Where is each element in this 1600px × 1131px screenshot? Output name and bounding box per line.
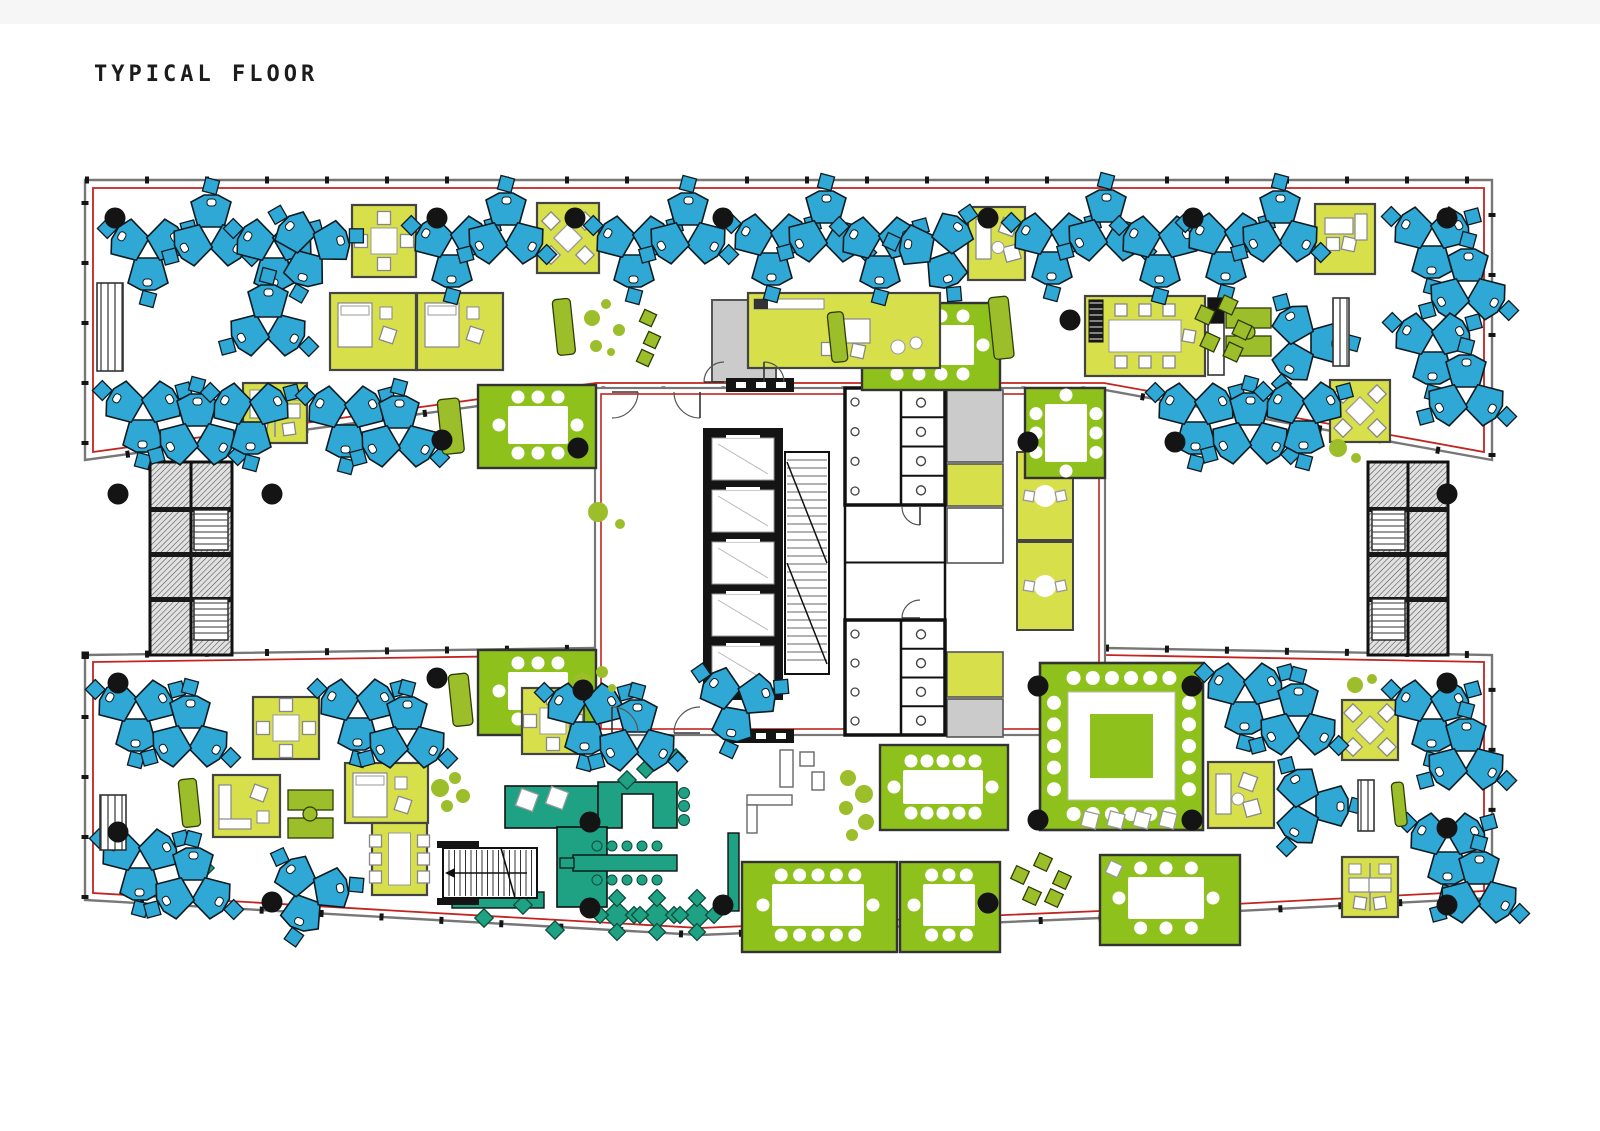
desk-slot — [1443, 873, 1452, 880]
chair — [953, 807, 966, 820]
desk-slot — [1462, 723, 1471, 730]
desk-slot — [633, 704, 642, 711]
table — [273, 715, 299, 741]
desk-chair — [588, 753, 605, 770]
sofa — [219, 785, 231, 821]
booth-desk2-18 — [1342, 857, 1398, 917]
desk-slot — [1240, 723, 1249, 730]
column — [1060, 310, 1081, 331]
plant — [613, 324, 625, 336]
desk-chair — [443, 287, 460, 304]
column — [427, 208, 448, 229]
chair — [1327, 238, 1340, 251]
desk-chair — [774, 679, 789, 694]
column — [713, 895, 734, 916]
chair — [1243, 799, 1261, 817]
plant — [858, 814, 874, 830]
chair — [257, 722, 270, 735]
desk-chair — [349, 877, 364, 892]
chair — [552, 447, 565, 460]
desk-chair — [1151, 287, 1168, 304]
column — [108, 822, 129, 843]
chair — [1047, 696, 1061, 710]
plant — [590, 340, 602, 352]
plant — [1351, 453, 1361, 463]
plant — [608, 684, 616, 692]
chair — [848, 869, 861, 882]
column — [1437, 208, 1458, 229]
toilet-icon — [917, 486, 926, 495]
chair — [1134, 862, 1147, 875]
washbasin-icon — [851, 457, 859, 465]
stair-flange — [437, 841, 479, 848]
stair-flange — [437, 898, 479, 905]
white-furniture — [747, 805, 757, 833]
column — [580, 898, 601, 919]
chair — [986, 781, 999, 794]
column — [573, 680, 594, 701]
booth-sofaL-14 — [213, 775, 280, 837]
column — [427, 668, 448, 689]
desk-chair — [141, 749, 158, 766]
meeting-room-8 — [1100, 855, 1240, 945]
chair — [547, 738, 560, 751]
desk-chair — [871, 288, 888, 305]
desk-chair — [1289, 666, 1306, 683]
stair-flight — [1372, 599, 1405, 640]
washbasin-icon — [851, 428, 859, 436]
desk-chair — [1480, 814, 1497, 831]
chair — [1185, 922, 1198, 935]
desk-chair — [202, 177, 219, 194]
core-accessible-wc — [947, 464, 1003, 506]
chair — [1090, 427, 1103, 440]
desk-slot — [1427, 267, 1436, 274]
washbasin-icon — [851, 688, 859, 696]
chair — [960, 869, 973, 882]
shaft-slot — [736, 382, 746, 388]
chair — [937, 755, 950, 768]
desk-slot — [875, 277, 884, 284]
toilet-icon — [917, 457, 926, 466]
toilet-icon — [917, 716, 926, 725]
toilet-icon — [917, 659, 926, 668]
desk-chair — [162, 248, 179, 265]
shaft-slot — [756, 382, 766, 388]
column — [568, 438, 589, 459]
plant — [456, 789, 470, 803]
plant — [596, 666, 608, 678]
column — [1182, 810, 1203, 831]
chair — [848, 929, 861, 942]
desk-chair — [457, 246, 474, 263]
plant — [615, 519, 625, 529]
desk-slot — [1276, 195, 1285, 202]
sofa — [1216, 774, 1231, 814]
chair — [512, 657, 525, 670]
chair — [1047, 782, 1061, 796]
phone-chair — [1023, 490, 1035, 502]
stacked-chair — [1133, 811, 1151, 829]
chair — [1341, 236, 1356, 251]
chair — [850, 343, 865, 358]
chair — [830, 869, 843, 882]
large-meeting-room — [1040, 663, 1203, 830]
column — [713, 208, 734, 229]
chair — [1090, 407, 1103, 420]
cafe-long-table — [573, 855, 677, 871]
chair — [775, 929, 788, 942]
chair — [1182, 739, 1196, 753]
phone-chair — [1023, 580, 1035, 592]
chair — [957, 310, 970, 323]
desk — [1369, 878, 1391, 892]
chair — [925, 869, 938, 882]
washbasin-icon — [851, 487, 859, 495]
plant — [846, 829, 858, 841]
desk-slot — [135, 889, 144, 896]
phone-table — [1034, 575, 1056, 597]
desk-slot — [726, 729, 736, 737]
chair — [418, 835, 430, 847]
desk-chair — [1417, 772, 1434, 789]
plant — [431, 779, 449, 797]
chair — [1047, 761, 1061, 775]
desk-chair — [144, 901, 161, 918]
chair — [1143, 671, 1157, 685]
desk-slot — [264, 289, 273, 296]
desk-slot — [341, 446, 350, 453]
plant — [855, 785, 873, 803]
chair — [757, 899, 770, 912]
desk-slot — [336, 883, 344, 893]
chair — [1105, 671, 1119, 685]
chair — [867, 899, 880, 912]
desk-chair — [1457, 337, 1474, 354]
white-furniture — [747, 795, 792, 805]
booth-xtable-13 — [1342, 700, 1398, 760]
chair — [977, 339, 990, 352]
desk-chair — [184, 830, 201, 847]
desk-chair — [181, 678, 198, 695]
stool — [910, 337, 922, 349]
shaft-slot — [776, 382, 786, 388]
chair — [282, 422, 296, 436]
desk-chair — [1417, 408, 1434, 425]
column — [1182, 676, 1203, 697]
core-gray-cell — [947, 390, 1003, 462]
desk-slot — [1047, 273, 1056, 280]
chair — [830, 929, 843, 942]
desk-chair — [1187, 454, 1204, 471]
desk-slot — [447, 276, 456, 283]
chair — [891, 368, 904, 381]
chair — [812, 929, 825, 942]
floor-plan-page: TYPICAL FLOOR — [0, 0, 1600, 1131]
shaft-slot — [756, 733, 766, 739]
chair — [1086, 671, 1100, 685]
chair — [1067, 671, 1081, 685]
car-door — [726, 539, 760, 542]
chair — [1139, 304, 1151, 316]
chair — [957, 368, 970, 381]
desk-chair — [1278, 757, 1295, 774]
phone-chair — [1055, 580, 1067, 592]
plant — [584, 310, 600, 326]
cafe-table-end — [560, 858, 574, 868]
desk-chair — [398, 679, 415, 696]
desk-slot — [246, 443, 255, 450]
phone-room-2 — [1017, 542, 1073, 630]
white-furniture — [780, 750, 793, 787]
stool — [592, 875, 602, 885]
sofa — [219, 819, 251, 829]
desk-chair — [1201, 446, 1218, 463]
chair — [493, 685, 506, 698]
booth-desk1-4 — [1315, 204, 1375, 274]
desk-slot — [1475, 856, 1484, 863]
chair — [1182, 329, 1196, 343]
washbasin-icon — [851, 398, 859, 406]
desk-chair — [1043, 284, 1060, 301]
chair — [1160, 922, 1173, 935]
toilet-icon — [917, 398, 926, 407]
chair — [1373, 896, 1387, 910]
chair — [401, 235, 414, 248]
chair — [935, 368, 948, 381]
booth-lounge-17 — [1208, 762, 1274, 828]
booth-table6v-16 — [370, 823, 430, 895]
chair — [1115, 304, 1127, 316]
chair — [370, 835, 382, 847]
column — [1018, 432, 1039, 453]
column — [1437, 818, 1458, 839]
chair — [280, 699, 293, 712]
meeting-room-6 — [742, 862, 897, 952]
stacked-chair — [1081, 811, 1099, 829]
plant — [1329, 439, 1347, 457]
desk-slot — [1155, 276, 1164, 283]
column — [105, 208, 126, 229]
desk-chair — [1419, 302, 1436, 319]
desk-chair — [1465, 314, 1482, 331]
washbasin-icon — [851, 659, 859, 667]
booth-bed-5 — [330, 293, 416, 370]
stool — [607, 841, 617, 851]
core-gray-cell — [947, 699, 1003, 737]
column — [565, 208, 586, 229]
chair — [1160, 862, 1173, 875]
column — [432, 430, 453, 451]
booth-bed-15 — [345, 763, 428, 823]
chair — [921, 807, 934, 820]
av-unit — [754, 299, 768, 309]
chair — [1090, 446, 1103, 459]
car-door — [726, 591, 760, 594]
desk-chair — [1271, 173, 1288, 190]
chair — [493, 419, 506, 432]
plant — [840, 770, 856, 786]
desk-chair — [358, 750, 375, 767]
desk-slot — [629, 276, 638, 283]
desk-slot — [684, 197, 693, 204]
stool — [637, 875, 647, 885]
stool — [592, 841, 602, 851]
desk-chair — [946, 287, 961, 302]
desk-slot — [1102, 194, 1111, 201]
desk-slot — [502, 197, 511, 204]
side-table — [380, 307, 392, 319]
chair — [913, 368, 926, 381]
chair — [793, 929, 806, 942]
column — [1437, 673, 1458, 694]
booth-table4-11 — [253, 697, 319, 759]
desk-chair — [763, 285, 780, 302]
chair — [1182, 696, 1196, 710]
chair — [888, 781, 901, 794]
column — [108, 484, 129, 505]
chair — [969, 807, 982, 820]
chair — [943, 929, 956, 942]
toilet-icon — [917, 427, 926, 436]
bookshelf — [1358, 780, 1374, 831]
bathroom-south — [845, 620, 945, 735]
stool — [679, 815, 690, 826]
table — [1109, 320, 1181, 352]
phone-chair — [1055, 490, 1067, 502]
pillow — [356, 776, 384, 785]
desk-slot — [395, 400, 404, 407]
desk — [1349, 878, 1371, 892]
chair — [905, 755, 918, 768]
chair — [370, 853, 382, 865]
column — [1437, 484, 1458, 505]
desk-chair — [242, 454, 259, 471]
column — [1437, 895, 1458, 916]
chair — [532, 447, 545, 460]
chair — [1115, 356, 1127, 368]
plant — [441, 800, 453, 812]
chair — [303, 722, 316, 735]
column — [1165, 432, 1186, 453]
desk-slot — [1428, 373, 1437, 380]
plant — [588, 502, 608, 522]
stool — [679, 788, 690, 799]
conference-table — [923, 884, 975, 926]
chair — [953, 755, 966, 768]
desk-slot — [186, 700, 195, 707]
chair — [552, 391, 565, 404]
chair — [532, 391, 545, 404]
chair — [1134, 922, 1147, 935]
desk-slot — [767, 274, 776, 281]
cabinet — [1355, 214, 1367, 240]
meeting-room-5 — [880, 745, 1008, 830]
conference-table — [1128, 877, 1204, 919]
chair — [937, 807, 950, 820]
desk-chair — [350, 449, 367, 466]
plant — [601, 299, 611, 309]
desk-chair — [628, 682, 645, 699]
desk — [1325, 218, 1353, 234]
stool — [652, 875, 662, 885]
stool — [622, 841, 632, 851]
toilet-icon — [917, 687, 926, 696]
cabinet — [1379, 864, 1391, 874]
desk-slot — [1462, 359, 1471, 366]
chair — [1030, 407, 1043, 420]
conference-table — [508, 406, 568, 444]
chair — [1182, 761, 1196, 775]
desk-slot — [1294, 688, 1303, 695]
booth-table8h-8 — [1085, 296, 1205, 376]
chair — [552, 657, 565, 670]
column — [108, 673, 129, 694]
white-furniture — [812, 772, 824, 790]
desk-chair — [817, 173, 834, 190]
chair — [418, 871, 430, 883]
stool — [303, 807, 317, 821]
chair — [1353, 896, 1367, 910]
chair — [1060, 465, 1073, 478]
core-stair — [785, 452, 829, 674]
desk-chair — [390, 378, 407, 395]
external-stair-left — [150, 462, 232, 655]
plan-root — [78, 172, 1537, 965]
conference-table — [903, 770, 983, 804]
counter — [1089, 300, 1103, 342]
table — [371, 228, 397, 254]
meeting-room-2 — [1025, 388, 1105, 478]
core-accessible-wc — [947, 652, 1003, 697]
column — [1028, 810, 1049, 831]
stacked-chair — [1107, 811, 1125, 829]
chair — [1182, 717, 1196, 731]
desk-chair — [679, 175, 696, 192]
desk-slot — [403, 701, 412, 708]
side-table — [1232, 793, 1244, 805]
booth-bed-6 — [417, 293, 503, 370]
desk-slot — [189, 852, 198, 859]
desk-chair — [1464, 681, 1481, 698]
desk-chair — [1097, 172, 1114, 189]
conference-table — [772, 884, 864, 926]
chair — [418, 853, 430, 865]
toilet-icon — [917, 630, 926, 639]
car-door — [726, 435, 760, 438]
desk-chair — [1249, 737, 1266, 754]
side-table — [992, 242, 1004, 254]
desk-slot — [1221, 273, 1230, 280]
desk-chair — [259, 267, 276, 284]
chair — [1060, 389, 1073, 402]
chair — [925, 929, 938, 942]
pillow — [428, 306, 456, 315]
desk-slot — [353, 739, 362, 746]
plant — [1347, 677, 1363, 693]
desk-chair — [1470, 834, 1487, 851]
washbasin-icon — [851, 630, 859, 638]
chair — [512, 447, 525, 460]
desk-chair — [1464, 208, 1481, 225]
white-furniture — [800, 752, 814, 766]
stool — [637, 841, 647, 851]
core-cell — [947, 508, 1003, 563]
desk-chair — [148, 447, 165, 464]
plant — [1367, 674, 1377, 684]
shaft-slot — [776, 733, 786, 739]
ring-table-center — [1090, 714, 1153, 778]
